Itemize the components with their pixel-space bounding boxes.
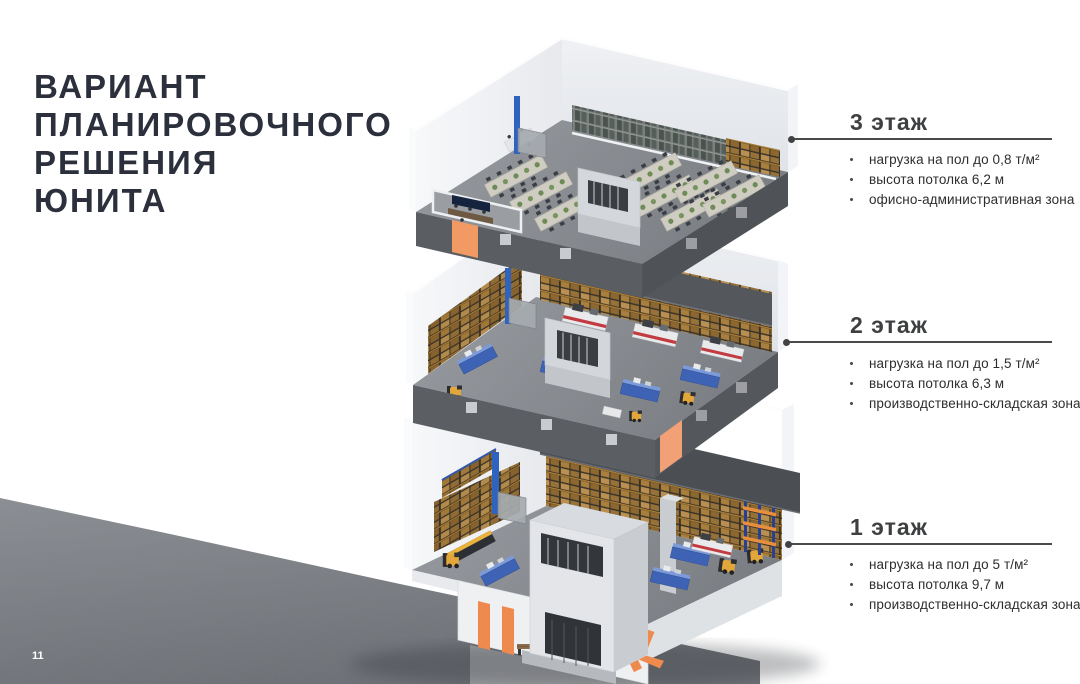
bullet-icon [850,563,853,566]
bullet-icon [850,362,853,365]
bullet-icon [850,178,853,181]
spec-item: нагрузка на пол до 0,8 т/м² [846,149,1074,169]
bullet-icon [850,198,853,201]
stair-tower [530,503,648,672]
bullet-icon [850,158,853,161]
bullet-icon [850,402,853,405]
bullet-icon [850,382,853,385]
bullet-icon [850,603,853,606]
floor-3-label: 3 этаж [850,109,928,136]
leader-dot-icon [783,339,790,346]
spec-item: высота потолка 6,3 м [846,373,1080,393]
leader-line-floor-2 [786,341,1052,343]
orange-door [452,220,478,258]
spec-item: офисно-административная зона [846,189,1074,209]
spec-item: производственно-складская зона [846,594,1080,614]
floor-2-label: 2 этаж [850,312,928,339]
spec-item: нагрузка на пол до 5 т/м² [846,554,1080,574]
presentation-slide: ВАРИАНТ ПЛАНИРОВОЧНОГО РЕШЕНИЯ ЮНИТА 3 э… [0,0,1080,684]
orange-stripe [478,601,490,650]
spec-item: высота потолка 6,2 м [846,169,1074,189]
leader-line-floor-1 [788,543,1052,545]
floor-1-label: 1 этаж [850,514,928,541]
orange-stripe [502,606,514,655]
title-line: ВАРИАНТ [34,68,393,106]
leader-dot-icon [788,136,795,143]
title-line: ПЛАНИРОВОЧНОГО [34,106,393,144]
leader-dot-icon [785,541,792,548]
floor-2-specs: нагрузка на пол до 1,5 т/м² высота потол… [846,353,1080,413]
floor-1-specs: нагрузка на пол до 5 т/м² высота потолка… [846,554,1080,614]
floor-3-specs: нагрузка на пол до 0,8 т/м² высота потол… [846,149,1074,209]
slide-title: ВАРИАНТ ПЛАНИРОВОЧНОГО РЕШЕНИЯ ЮНИТА [34,68,393,220]
spec-item: производственно-складская зона [846,393,1080,413]
leader-line-floor-3 [791,138,1052,140]
title-line: ЮНИТА [34,182,393,220]
bullet-icon [850,583,853,586]
page-number: 11 [32,650,44,662]
spec-item: высота потолка 9,7 м [846,574,1080,594]
spec-item: нагрузка на пол до 1,5 т/м² [846,353,1080,373]
title-line: РЕШЕНИЯ [34,144,393,182]
